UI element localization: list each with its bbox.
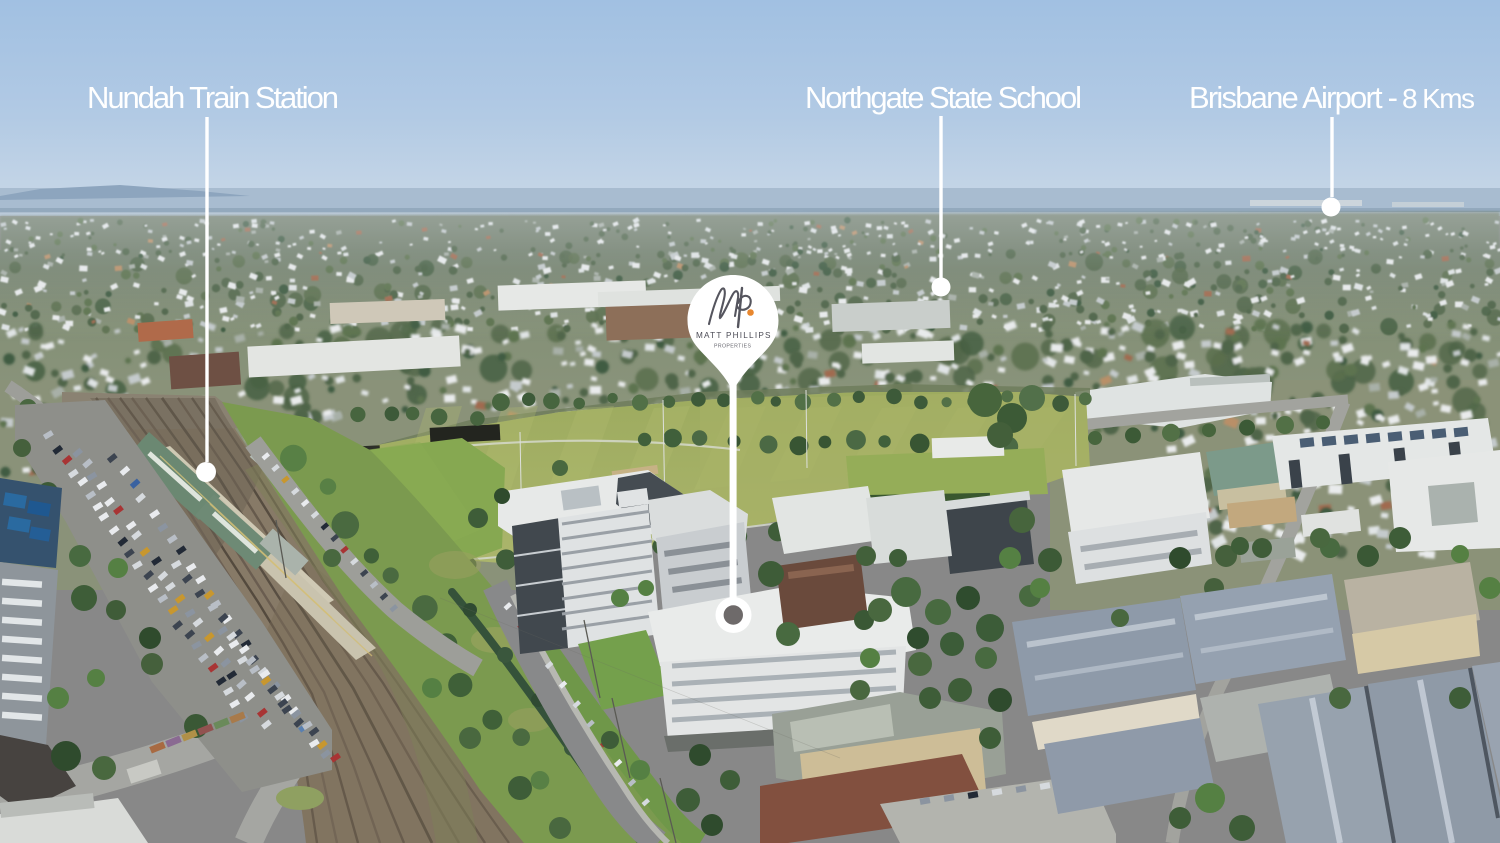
svg-text:Brisbane Airport -: Brisbane Airport - — [1189, 80, 1398, 115]
svg-text:8 Kms: 8 Kms — [1402, 83, 1475, 114]
svg-text:Nundah Train Station: Nundah Train Station — [87, 80, 339, 115]
svg-text:MATT PHILLIPS: MATT PHILLIPS — [696, 331, 772, 340]
svg-text:PROPERTIES: PROPERTIES — [714, 344, 752, 350]
svg-text:Northgate State School: Northgate State School — [805, 80, 1082, 115]
